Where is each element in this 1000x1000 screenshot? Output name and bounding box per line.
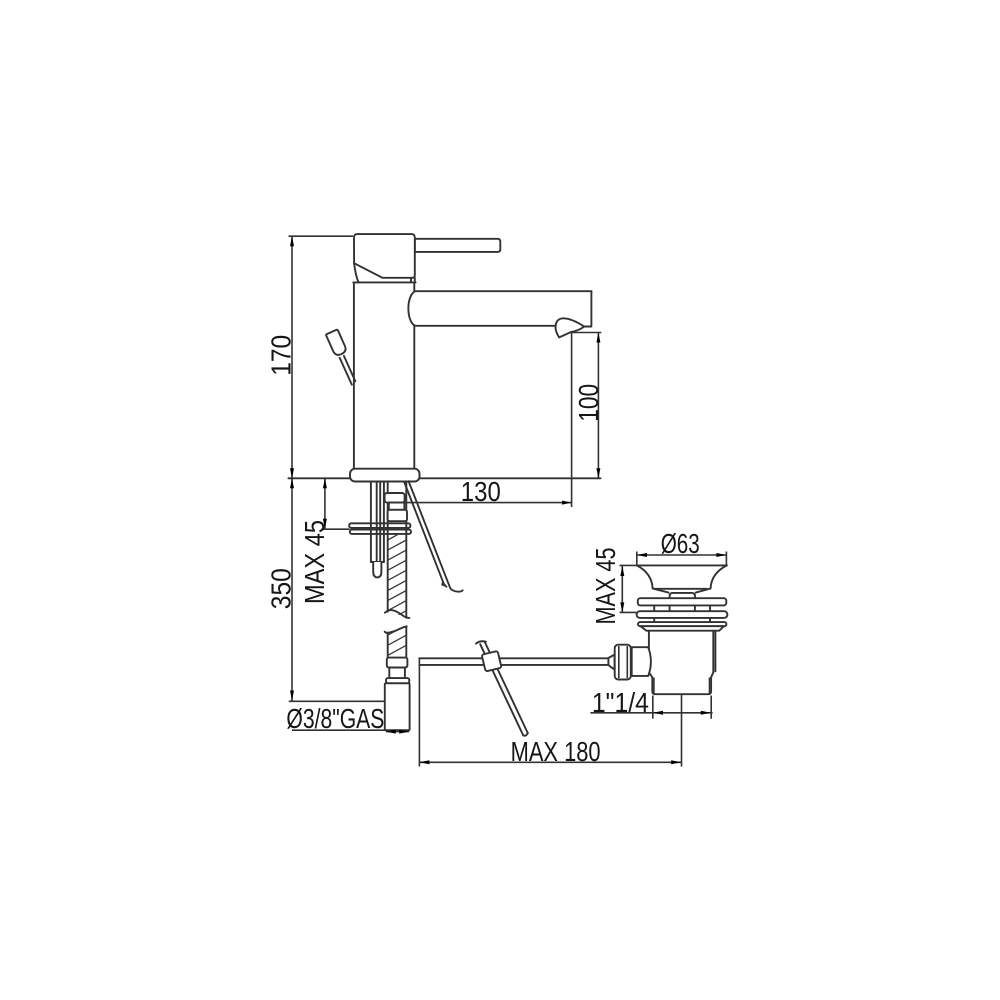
svg-text:100: 100	[573, 384, 604, 422]
svg-text:MAX 180: MAX 180	[511, 736, 601, 767]
svg-text:MAX 45: MAX 45	[590, 548, 621, 625]
svg-text:Ø63: Ø63	[661, 528, 700, 559]
svg-text:170: 170	[266, 335, 297, 376]
svg-text:130: 130	[461, 476, 501, 507]
svg-text:MAX 45: MAX 45	[299, 520, 330, 604]
svg-text:1"1/4: 1"1/4	[592, 687, 649, 718]
svg-text:350: 350	[266, 568, 297, 609]
svg-text:Ø3/8"GAS: Ø3/8"GAS	[286, 703, 384, 734]
